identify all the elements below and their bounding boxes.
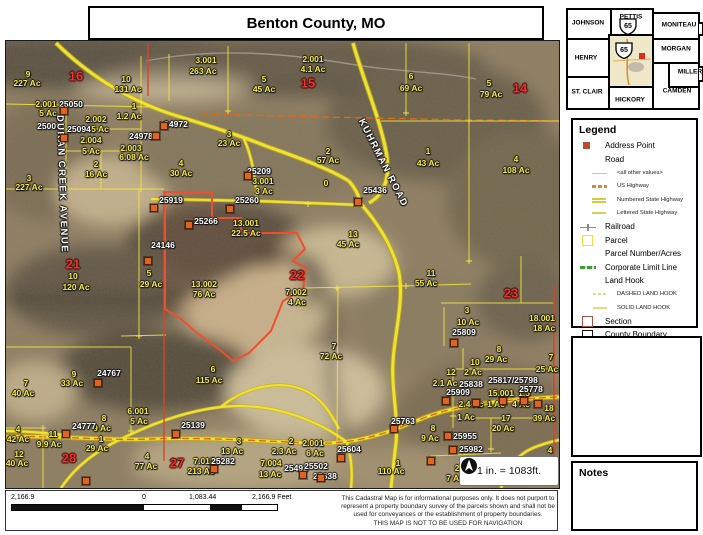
- address-point-marker: [244, 172, 252, 180]
- parcel-label: 40 Ac: [6, 458, 28, 468]
- parcel-label: 7: [24, 378, 29, 388]
- parcel-label: 4: [179, 158, 184, 168]
- section-number-label: 15: [301, 76, 315, 91]
- parcel-label: 29 Ac: [485, 354, 507, 364]
- legend-item-label: Land Hook: [605, 276, 644, 285]
- parcel-label: 2.001: [302, 438, 323, 448]
- address-point-label: 25809: [452, 327, 476, 337]
- address-point-marker: [94, 379, 102, 387]
- scale-segment: [210, 505, 243, 510]
- county-label: HENRY: [575, 55, 598, 62]
- parcel-label: 1 Ac: [457, 412, 475, 422]
- legend-item: <all other values>: [591, 167, 696, 178]
- section-number-label: 22: [290, 268, 304, 283]
- legend-item-label: Parcel Number/Acres: [605, 249, 681, 258]
- address-point-marker: [520, 397, 528, 405]
- legend-item: SOLID LAND HOOK: [591, 302, 696, 313]
- county-label: JOHNSON: [572, 20, 604, 27]
- parcel-label: 3: [237, 436, 242, 446]
- parcel-label: 115 Ac: [196, 375, 223, 385]
- footer-bar: 2,166.9 0 1,083.44 2,166.9 Feet This Cad…: [5, 490, 558, 531]
- parcel-label: 40 Ac: [12, 388, 34, 398]
- dhook-swatch-icon: [591, 289, 611, 299]
- legend-item: Parcel: [579, 235, 696, 246]
- parcel-label: 11: [427, 268, 436, 278]
- rail-swatch-icon: [579, 222, 599, 232]
- addr-swatch-icon: [579, 141, 599, 151]
- notes-panel: Notes: [571, 461, 698, 531]
- legend-item: Lettered State Highway: [591, 208, 696, 219]
- corp-swatch-icon: [579, 262, 599, 272]
- address-point-label: 25778: [519, 384, 543, 394]
- cadastral-map-page: Benton County, MO: [0, 0, 703, 535]
- parcel-label: 79 Ac: [480, 89, 502, 99]
- address-point-label: 25260: [235, 195, 259, 205]
- legend-items: Address PointRoad<all other values>US Hi…: [579, 140, 696, 340]
- address-point-marker: [427, 457, 435, 465]
- address-point-label: 24978: [129, 131, 153, 141]
- county-label: PETTIS: [620, 14, 643, 21]
- disclaimer-line: This Cadastral Map is for informational …: [336, 495, 560, 503]
- parcel-label: 10: [68, 271, 77, 281]
- legend-item-label: <all other values>: [617, 170, 663, 176]
- parcel-label: 12: [446, 367, 455, 377]
- parcel-label: 7: [549, 352, 554, 362]
- address-point-marker: [449, 446, 457, 454]
- parcel-label: 3: [465, 305, 470, 315]
- parcel-label: 76 Ac: [193, 289, 215, 299]
- address-point-label: 25436: [363, 185, 387, 195]
- address-point-marker: [444, 432, 452, 440]
- legend-item: DASHED LAND HOOK: [591, 289, 696, 300]
- parcel-label: 9 Ac: [421, 433, 439, 443]
- address-point-marker: [390, 425, 398, 433]
- address-point-marker: [210, 465, 218, 473]
- section-number-label: 27: [170, 456, 184, 471]
- parcel-label: 23 Ac: [218, 138, 240, 148]
- address-point-marker: [60, 134, 68, 142]
- legend-title: Legend: [579, 124, 696, 136]
- section-number-label: 28: [62, 451, 76, 466]
- address-point-marker: [472, 399, 480, 407]
- address-point-marker: [60, 107, 68, 115]
- parcel-label: 108 Ac: [502, 165, 529, 175]
- no-swatch-icon: [579, 154, 599, 164]
- disclaimer-line: used for conveyances or the establishmen…: [336, 511, 560, 519]
- address-point-marker: [152, 132, 160, 140]
- scale-label-end: 2,166.9 Feet: [252, 494, 291, 501]
- legend-item: Railroad: [579, 221, 696, 232]
- legend-item-label: Lettered State Highway: [617, 210, 677, 216]
- scale-segment: [12, 505, 144, 510]
- address-point-marker: [160, 122, 168, 130]
- legend-item-label: US Highway: [617, 183, 649, 189]
- map-title-box: Benton County, MO: [88, 6, 544, 40]
- parcel-label: 29 Ac: [140, 279, 162, 289]
- parcel-label: 13 Ac: [259, 469, 281, 479]
- parcel-label: 2.3 Ac: [272, 446, 297, 456]
- legend-item-label: Numbered State Highway: [617, 197, 683, 203]
- inset-county-labels: JOHNSONPETTISMONITEAUHENRYMORGANMILLERST…: [565, 3, 703, 111]
- parcel-label: 7.004: [260, 458, 281, 468]
- address-point-marker: [499, 397, 507, 405]
- map-canvas: 9227 Ac10131 Ac2.0015 Ac2.0025 Ac11.2 Ac…: [5, 40, 560, 489]
- county-label: CAMDEN: [663, 88, 692, 95]
- legend-item: US Highway: [591, 181, 696, 192]
- parcel-label: 10: [470, 357, 479, 367]
- parcel-label: 18.001: [529, 313, 555, 323]
- address-point-label: 24767: [97, 368, 121, 378]
- address-point-label: 25094: [67, 124, 91, 134]
- no-swatch-icon: [579, 249, 599, 259]
- address-point-marker: [354, 198, 362, 206]
- legend-item: Corporate Limit Line: [579, 262, 696, 273]
- parcel-label: 4: [145, 451, 150, 461]
- parcel-label: 4 Ac: [288, 297, 306, 307]
- page-title: Benton County, MO: [247, 15, 386, 32]
- parcel-label: 55 Ac: [415, 278, 437, 288]
- legend-item: Parcel Number/Acres: [579, 248, 696, 259]
- parcel-label: 39 Ac: [533, 413, 555, 423]
- parcel-label: 72 Ac: [320, 351, 342, 361]
- address-point-label: 25919: [159, 195, 183, 205]
- parcel-label: 30 Ac: [170, 168, 192, 178]
- parcel-label: 6.08 Ac: [119, 152, 148, 162]
- parcel-label: 7: [332, 341, 337, 351]
- county-label: MONITEAU: [662, 22, 697, 29]
- parcel-label: 13: [348, 229, 357, 239]
- parcel-label: 2 Ac: [464, 367, 482, 377]
- legend-item: Land Hook: [579, 275, 696, 286]
- scale-label-mid: 1,083.44: [189, 494, 216, 501]
- parcel-label: 18: [544, 403, 553, 413]
- scale-note-label: 1 in. = 1083ft.: [477, 465, 541, 477]
- parcel-label: 110 Ac: [378, 466, 405, 476]
- north-arrow-icon: [460, 457, 478, 475]
- parcel-label: 9.9 Ac: [37, 439, 62, 449]
- scale-segment: [242, 505, 277, 510]
- parcel-label: 4.1 Ac: [301, 64, 326, 74]
- section-swatch-icon: [579, 316, 599, 326]
- parcel-label: 5 Ac: [130, 416, 148, 426]
- parcel-label: 69 Ac: [400, 83, 422, 93]
- parcel-label: 7.002: [285, 287, 306, 297]
- parcel-label: 45 Ac: [337, 239, 359, 249]
- address-point-marker: [150, 204, 158, 212]
- section-number-label: 16: [69, 69, 83, 84]
- county-label: ST. CLAIR: [571, 89, 602, 96]
- address-point-label: 25604: [337, 444, 361, 454]
- legend-item-label: Corporate Limit Line: [605, 263, 677, 272]
- parcel-label: 25 Ac: [536, 364, 558, 374]
- address-point-label: 24146: [151, 240, 175, 250]
- parcel-label: 6: [211, 364, 216, 374]
- scale-note-box: 1 in. = 1083ft.: [459, 456, 559, 486]
- parcel-label: 4: [16, 424, 21, 434]
- parcel-label: 5: [147, 268, 152, 278]
- legend-panel: Legend Address PointRoad<all other value…: [571, 118, 698, 328]
- parcel-label: 8: [102, 413, 107, 423]
- legend-item: Section: [579, 316, 696, 327]
- address-point-marker: [185, 221, 193, 229]
- parcel-label: 16 Ac: [85, 169, 107, 179]
- parcel-label: 4: [514, 154, 519, 164]
- address-point-marker: [172, 430, 180, 438]
- scale-label-zero: 0: [142, 494, 146, 501]
- parcel-label: 8: [431, 423, 436, 433]
- scale-segment: [144, 505, 210, 510]
- address-point-marker: [317, 474, 325, 482]
- lethwy-swatch-icon: [591, 208, 611, 218]
- scale-label-neg: 2,166.9: [11, 494, 34, 501]
- legend-item-label: Road: [605, 155, 624, 164]
- parcel-label: 120 Ac: [62, 282, 89, 292]
- parcel-label: 2.002: [85, 114, 106, 124]
- parcel-label: 5: [487, 78, 492, 88]
- parcel-label: 3.001: [252, 176, 273, 186]
- parcel-label: 227 Ac: [13, 78, 40, 88]
- disclaimer-line: represent a property boundary survey of …: [336, 503, 560, 511]
- parcel-label: 29 Ac: [86, 443, 108, 453]
- parcel-label: 6.001: [127, 406, 148, 416]
- parcel-label: 1: [426, 146, 431, 156]
- parcel-label: 3.001: [195, 55, 216, 65]
- address-point-marker: [450, 339, 458, 347]
- legend-item-label: Parcel: [605, 236, 628, 245]
- parcel-label: 18 Ac: [533, 323, 555, 333]
- address-point-marker: [337, 454, 345, 462]
- shook-swatch-icon: [591, 303, 611, 313]
- county-label: MILLER: [678, 69, 702, 76]
- parcel-label: 33 Ac: [61, 378, 83, 388]
- road-name-label: KUHRMAN ROAD: [356, 117, 410, 209]
- address-point-label: 24777: [72, 421, 96, 431]
- address-point-label: 25982: [459, 444, 483, 454]
- parcel-swatch-icon: [579, 235, 599, 245]
- parcel-label: 2: [94, 159, 99, 169]
- parcel-label: 77 Ac: [135, 461, 157, 471]
- legend-item: Road: [579, 154, 696, 165]
- address-point-marker: [82, 477, 90, 485]
- county-label: HICKORY: [615, 97, 645, 104]
- section-number-label: 14: [513, 81, 527, 96]
- map-labels: 9227 Ac10131 Ac2.0015 Ac2.0025 Ac11.2 Ac…: [6, 41, 559, 488]
- parcel-label: 20 Ac: [492, 423, 514, 433]
- parcel-label: 22.5 Ac: [231, 228, 260, 238]
- parcel-label: 2: [289, 436, 294, 446]
- address-point-marker: [442, 397, 450, 405]
- address-point-label: 25909: [446, 387, 470, 397]
- address-point-marker: [534, 400, 542, 408]
- parcel-label: 263 Ac: [189, 66, 216, 76]
- address-point-marker: [144, 257, 152, 265]
- parcel-label: 0: [324, 178, 329, 188]
- section-number-label: 21: [66, 257, 80, 272]
- no-swatch-icon: [579, 276, 599, 286]
- legend-item: Numbered State Highway: [591, 194, 696, 205]
- parcel-label: 10 Ac: [457, 317, 479, 327]
- parcel-label: 5: [262, 74, 267, 84]
- legend-item-label: Railroad: [605, 222, 635, 231]
- scale-bar-graphic: [11, 504, 278, 511]
- parcel-label: 5 Ac: [82, 146, 100, 156]
- notes-title: Notes: [579, 467, 696, 479]
- parcel-label: 6 Ac: [306, 448, 324, 458]
- legend-item: Address Point: [579, 140, 696, 151]
- parcel-label: 4: [548, 445, 553, 455]
- disclaimer: This Cadastral Map is for informational …: [336, 495, 560, 528]
- parcel-label: 1.2 Ac: [117, 111, 142, 121]
- parcel-label: 2.004: [80, 135, 101, 145]
- parcel-label: 13.001: [233, 218, 259, 228]
- section-number-label: 23: [504, 286, 518, 301]
- disclaimer-navigation-warning: THIS MAP IS NOT TO BE USED FOR NAVIGATIO…: [336, 520, 560, 528]
- empty-panel: [571, 336, 702, 457]
- numhwy-swatch-icon: [591, 195, 611, 205]
- parcel-label: 42 Ac: [7, 434, 29, 444]
- legend-item-label: Section: [605, 317, 632, 326]
- legend-item-label: Address Point: [605, 141, 655, 150]
- county-label: MORGAN: [661, 46, 691, 53]
- parcel-label: 6: [409, 71, 414, 81]
- address-point-label: 25502: [304, 461, 328, 471]
- address-point-marker: [299, 471, 307, 479]
- parcel-label: 227 Ac: [15, 182, 42, 192]
- parcel-label: 11: [49, 429, 58, 439]
- parcel-label: 17: [501, 413, 510, 423]
- ushwy-swatch-icon: [591, 181, 611, 191]
- legend-item-label: SOLID LAND HOOK: [617, 305, 670, 311]
- address-point-marker: [226, 205, 234, 213]
- parcel-label: 10: [121, 74, 130, 84]
- parcel-label: 57 Ac: [317, 155, 339, 165]
- parcel-label: 45 Ac: [253, 84, 275, 94]
- parcel-label: 2.001: [302, 54, 323, 64]
- parcel-label: 8: [497, 344, 502, 354]
- parcel-label: 131 Ac: [114, 84, 141, 94]
- parcel-label: 1: [132, 101, 137, 111]
- parcel-label: 43 Ac: [417, 158, 439, 168]
- thinline-swatch-icon: [591, 168, 611, 178]
- parcel-label: 13.002: [191, 279, 217, 289]
- address-point-marker: [62, 430, 70, 438]
- legend-item-label: DASHED LAND HOOK: [617, 291, 677, 297]
- parcel-label: 13 Ac: [221, 446, 243, 456]
- address-point-label: 25955: [453, 431, 477, 441]
- parcel-label: 5 Ac: [91, 124, 109, 134]
- address-point-label: 25266: [194, 216, 218, 226]
- address-point-label: 25139: [181, 420, 205, 430]
- inset-locator-map: 65 65 JOHNSONPETTISMONITEAUHENRYMORGANMI…: [565, 3, 703, 111]
